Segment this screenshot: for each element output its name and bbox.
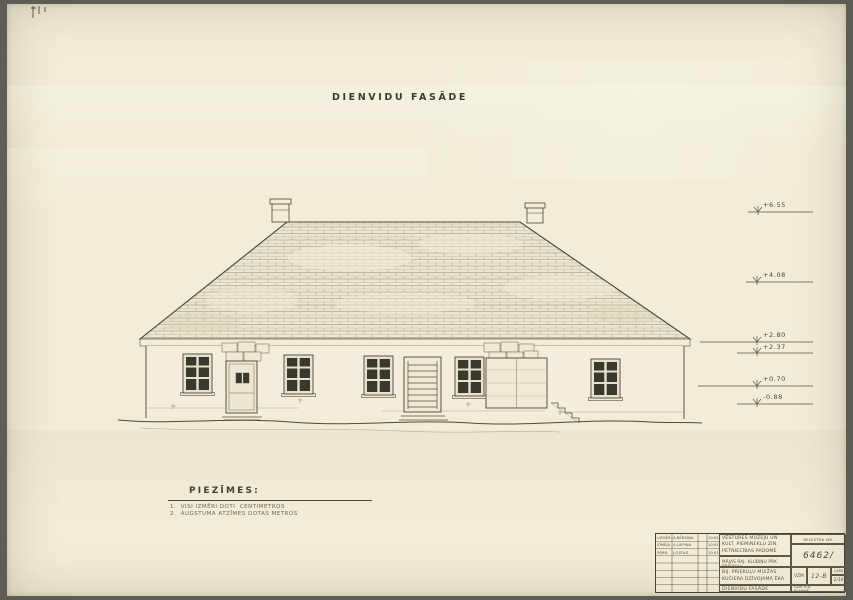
window-2 bbox=[282, 355, 316, 397]
personnel-name: A.BĒRZIŅA bbox=[673, 535, 698, 540]
checked-by-cell: UZM. K.K. KĻAVIŅŠ bbox=[791, 585, 846, 592]
checked-line: KĻAVIŅŠ bbox=[794, 590, 843, 592]
chimney-right bbox=[525, 203, 545, 223]
drawing-sheet: DIENVIDU FASĀDE +6.55 +4.08 +2.80 +2.37 … bbox=[0, 0, 853, 600]
sheet-number-cell: 1/16 bbox=[831, 575, 846, 585]
personnel-date: 10.61 bbox=[708, 535, 719, 540]
object-cell: BIJ. PRIEKUĻU MUIŽAS KUČIERA DZĪVOJAMĀ Ē… bbox=[719, 567, 791, 585]
sheet-name-cell: DIENVIDU FASĀDE bbox=[719, 585, 791, 592]
institution-cell: VĒSTURES MUZEJU UN KULT. PIEMINEKĻU ZIN.… bbox=[719, 534, 791, 556]
personnel-date: 10.61 bbox=[708, 550, 719, 555]
barn-door bbox=[486, 358, 547, 408]
elevation-label-4: +2.37 bbox=[763, 343, 786, 351]
object-line: BIJ. PRIEKUĻU MUIŽAS bbox=[722, 570, 788, 577]
code-cell: VZM bbox=[791, 567, 807, 585]
drawing-code-cell: 12-B bbox=[807, 567, 831, 585]
elevation-leaders bbox=[698, 206, 813, 407]
notes-underline bbox=[168, 500, 372, 501]
elevation-label-3: +2.80 bbox=[763, 331, 786, 339]
personnel-name: J.OZOLS bbox=[673, 550, 698, 555]
roof bbox=[140, 222, 690, 339]
personnel-name: A.LIEPIŅA bbox=[673, 542, 698, 547]
window-3 bbox=[362, 356, 396, 398]
personnel-row: UZMĒR. A.BĒRZIŅA 10.61 bbox=[656, 534, 719, 541]
object-line: KUČIERA DZĪVOJAMĀ ĒKA bbox=[722, 577, 788, 584]
elevation-label-1: +6.55 bbox=[763, 201, 786, 209]
personnel-role: UZMĒR. bbox=[657, 535, 672, 540]
stone-lintel-right bbox=[484, 342, 538, 360]
window-4 bbox=[453, 357, 487, 399]
personnel-row: PĀRB. J.OZOLS 10.61 bbox=[656, 549, 719, 556]
institution-line: PĒTNIECĪBAS PADOME bbox=[722, 549, 788, 555]
personnel-role: PĀRB. bbox=[657, 550, 672, 555]
window-1 bbox=[181, 354, 215, 396]
elevation-label-5: +0.70 bbox=[763, 375, 786, 383]
elevation-label-6: -0.88 bbox=[763, 393, 783, 401]
personnel-date: 10.61 bbox=[708, 542, 719, 547]
facade-drawing bbox=[0, 0, 853, 600]
notes-heading: PIEZĪMES: bbox=[189, 486, 260, 496]
note-item-2: 2. AUGSTUMA ATZĪMES DOTAS METROS bbox=[170, 511, 298, 519]
register-number-label: REĢISTRA NR. bbox=[791, 534, 846, 544]
title-block: UZMĒR. A.BĒRZIŅA 10.61 ZĪMĒJA A.LIEPIŅA … bbox=[655, 533, 845, 593]
entry-door-left bbox=[226, 361, 257, 413]
personnel-role: ZĪMĒJA bbox=[657, 542, 672, 547]
register-number-value: 6462/ bbox=[791, 544, 846, 567]
chimney-left bbox=[270, 199, 291, 222]
fold-marks-icon bbox=[31, 6, 45, 18]
window-5 bbox=[589, 359, 623, 401]
project-cell: MĀJAS RAJ. KLUBIŅU PRK PRIEKUĻI bbox=[719, 556, 791, 567]
ground-line bbox=[118, 420, 702, 432]
sheet-label-cell: LAPA bbox=[831, 567, 846, 575]
personnel-row: ZĪMĒJA A.LIEPIŅA 10.61 bbox=[656, 541, 719, 548]
title-block-personnel: UZMĒR. A.BĒRZIŅA 10.61 ZĪMĒJA A.LIEPIŅA … bbox=[656, 534, 719, 592]
elevation-label-2: +4.08 bbox=[763, 271, 786, 279]
drawing-title: DIENVIDU FASĀDE bbox=[332, 92, 468, 103]
entry-door-center bbox=[404, 357, 441, 412]
